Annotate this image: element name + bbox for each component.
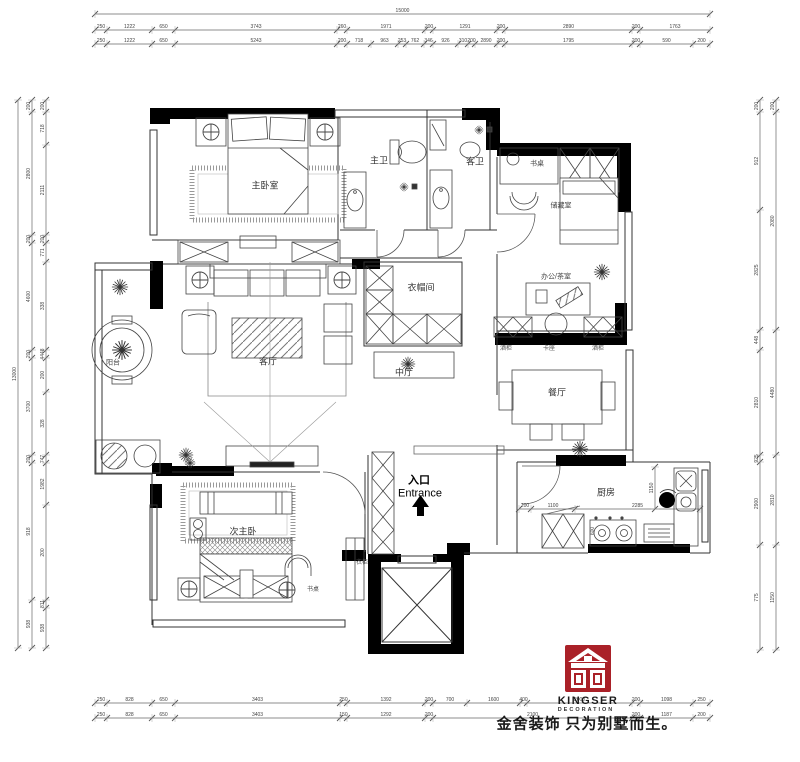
svg-text:4448: 4448 [40, 348, 46, 359]
svg-text:250: 250 [697, 697, 706, 703]
svg-text:590: 590 [662, 38, 671, 44]
svg-text:1982: 1982 [40, 478, 46, 489]
svg-text:2111: 2111 [40, 185, 46, 196]
svg-text:1150: 1150 [649, 482, 655, 493]
room-label-dining: 餐厅 [548, 389, 566, 398]
svg-text:2810: 2810 [754, 397, 760, 408]
svg-text:2080: 2080 [770, 215, 776, 226]
entrance-furniture [372, 446, 504, 554]
svg-text:2890: 2890 [480, 38, 491, 44]
svg-text:771: 771 [40, 248, 46, 257]
svg-text:448: 448 [754, 336, 760, 345]
svg-text:650: 650 [159, 24, 168, 30]
svg-text:963: 963 [380, 38, 389, 44]
svg-text:150: 150 [339, 712, 348, 718]
label-wine-cabinet-right: 酒柜 [592, 346, 604, 352]
room-label-second-master: 次主卧 [229, 528, 256, 537]
svg-text:200: 200 [697, 38, 706, 44]
svg-text:1222: 1222 [124, 38, 135, 44]
svg-text:200: 200 [754, 102, 760, 111]
svg-text:1222: 1222 [124, 24, 135, 30]
svg-text:200: 200 [26, 102, 32, 111]
svg-text:762: 762 [411, 38, 420, 44]
svg-text:200: 200 [521, 503, 530, 509]
svg-text:600: 600 [590, 527, 596, 536]
label-desk-top: 书桌 [530, 161, 544, 168]
svg-text:1795: 1795 [563, 38, 574, 44]
svg-text:200: 200 [26, 235, 32, 244]
svg-text:200: 200 [26, 350, 32, 359]
second-bedroom-furniture [178, 458, 364, 602]
label-booth-seat: 卡座 [543, 346, 555, 352]
svg-text:2800: 2800 [26, 168, 32, 179]
label-desk-bottom: 书桌 [307, 587, 319, 593]
svg-text:328: 328 [40, 419, 46, 428]
svg-text:200: 200 [632, 697, 641, 703]
guest-bath-fixtures [430, 120, 492, 228]
svg-text:2900: 2900 [754, 498, 760, 509]
dining-furniture [499, 370, 615, 440]
svg-text:1098: 1098 [661, 697, 672, 703]
svg-text:5243: 5243 [250, 38, 261, 44]
svg-text:200: 200 [770, 102, 776, 111]
svg-text:3403: 3403 [252, 697, 263, 703]
label-entry-cn: 入口 [408, 476, 430, 487]
room-label-master-bath: 主卫 [370, 157, 388, 166]
svg-text:2810: 2810 [770, 494, 776, 505]
svg-text:200: 200 [40, 235, 46, 244]
living-room-furniture [92, 262, 356, 473]
svg-text:200: 200 [497, 24, 506, 30]
svg-text:400: 400 [519, 697, 528, 703]
svg-text:200: 200 [632, 24, 641, 30]
svg-text:3700: 3700 [26, 401, 32, 412]
svg-text:253: 253 [398, 38, 407, 44]
svg-text:2825: 2825 [754, 264, 760, 275]
svg-text:1100: 1100 [548, 503, 559, 509]
svg-text:200: 200 [425, 697, 434, 703]
svg-text:200: 200 [338, 38, 347, 44]
master-bath-fixtures [344, 140, 426, 228]
room-label-master-bedroom: 主卧室 [251, 182, 278, 191]
svg-text:747: 747 [40, 455, 46, 464]
svg-text:3743: 3743 [250, 24, 261, 30]
svg-text:250: 250 [97, 24, 106, 30]
svg-text:200: 200 [26, 455, 32, 464]
label-wardrobe: 衣柜 [356, 560, 368, 566]
svg-text:250: 250 [97, 712, 106, 718]
room-label-storage: 储藏室 [551, 203, 572, 210]
svg-text:828: 828 [125, 697, 134, 703]
svg-text:4480: 4480 [770, 387, 776, 398]
logo-slogan: 金舍装饰 只为别墅而生。 [497, 713, 678, 734]
room-label-kitchen: 厨房 [597, 489, 615, 498]
svg-text:250: 250 [97, 697, 106, 703]
furniture-layer [92, 114, 698, 602]
svg-text:718: 718 [40, 124, 46, 133]
svg-text:200: 200 [632, 38, 641, 44]
svg-text:250: 250 [97, 38, 106, 44]
label-wine-cabinet-left: 酒柜 [500, 346, 512, 352]
svg-text:912: 912 [754, 157, 760, 166]
svg-text:1392: 1392 [380, 697, 391, 703]
svg-text:200: 200 [425, 24, 434, 30]
svg-text:310: 310 [459, 38, 468, 44]
svg-text:13000: 13000 [12, 367, 18, 381]
room-label-office-tea: 办公/茶室 [541, 274, 571, 281]
room-label-balcony: 阳台 [106, 360, 120, 367]
svg-text:200: 200 [467, 38, 476, 44]
svg-text:4600: 4600 [26, 291, 32, 302]
svg-text:250: 250 [339, 697, 348, 703]
svg-text:200: 200 [40, 548, 46, 557]
svg-text:938: 938 [40, 624, 46, 633]
storage-room-furniture [500, 148, 619, 244]
svg-text:1292: 1292 [380, 712, 391, 718]
svg-text:3403: 3403 [252, 712, 263, 718]
svg-text:811: 811 [40, 600, 46, 608]
svg-text:1291: 1291 [459, 24, 470, 30]
svg-text:200: 200 [697, 712, 706, 718]
svg-text:700: 700 [446, 697, 455, 703]
svg-text:925: 925 [754, 454, 760, 463]
svg-text:918: 918 [26, 527, 32, 536]
svg-text:938: 938 [26, 620, 32, 629]
svg-text:346: 346 [424, 38, 433, 44]
room-label-mid-hall: 中厅 [395, 369, 413, 378]
svg-text:2890: 2890 [563, 24, 574, 30]
svg-text:1600: 1600 [488, 697, 499, 703]
svg-text:650: 650 [159, 712, 168, 718]
svg-text:828: 828 [125, 712, 134, 718]
room-label-living: 客厅 [259, 358, 277, 367]
svg-text:200: 200 [497, 38, 506, 44]
svg-text:260: 260 [338, 24, 347, 30]
svg-text:338: 338 [40, 302, 46, 311]
svg-text:650: 650 [159, 38, 168, 44]
svg-text:200: 200 [40, 102, 46, 111]
svg-text:200: 200 [40, 371, 46, 380]
svg-text:1763: 1763 [669, 24, 680, 30]
svg-text:775: 775 [754, 593, 760, 602]
svg-text:200: 200 [425, 712, 434, 718]
kingser-logo-mark [565, 645, 611, 692]
room-label-cloakroom: 衣帽间 [407, 284, 434, 293]
room-label-guest-bath: 客卫 [466, 158, 484, 167]
svg-text:926: 926 [441, 38, 450, 44]
svg-text:650: 650 [159, 697, 168, 703]
floor-plan-sheet: 1500025012226503743260197120012912002890… [0, 0, 800, 762]
label-entry-en: Entrance [398, 489, 442, 500]
svg-text:1971: 1971 [380, 24, 391, 30]
floor-plan-canvas: 1500025012226503743260197120012912002890… [0, 0, 800, 762]
dimension-lines: 1500025012226503743260197120012912002890… [12, 8, 780, 722]
svg-text:2285: 2285 [632, 503, 643, 509]
svg-text:718: 718 [355, 38, 364, 44]
logo-brand-text: KINGSER [558, 695, 619, 707]
svg-text:1150: 1150 [770, 592, 776, 603]
svg-text:15000: 15000 [396, 8, 410, 14]
